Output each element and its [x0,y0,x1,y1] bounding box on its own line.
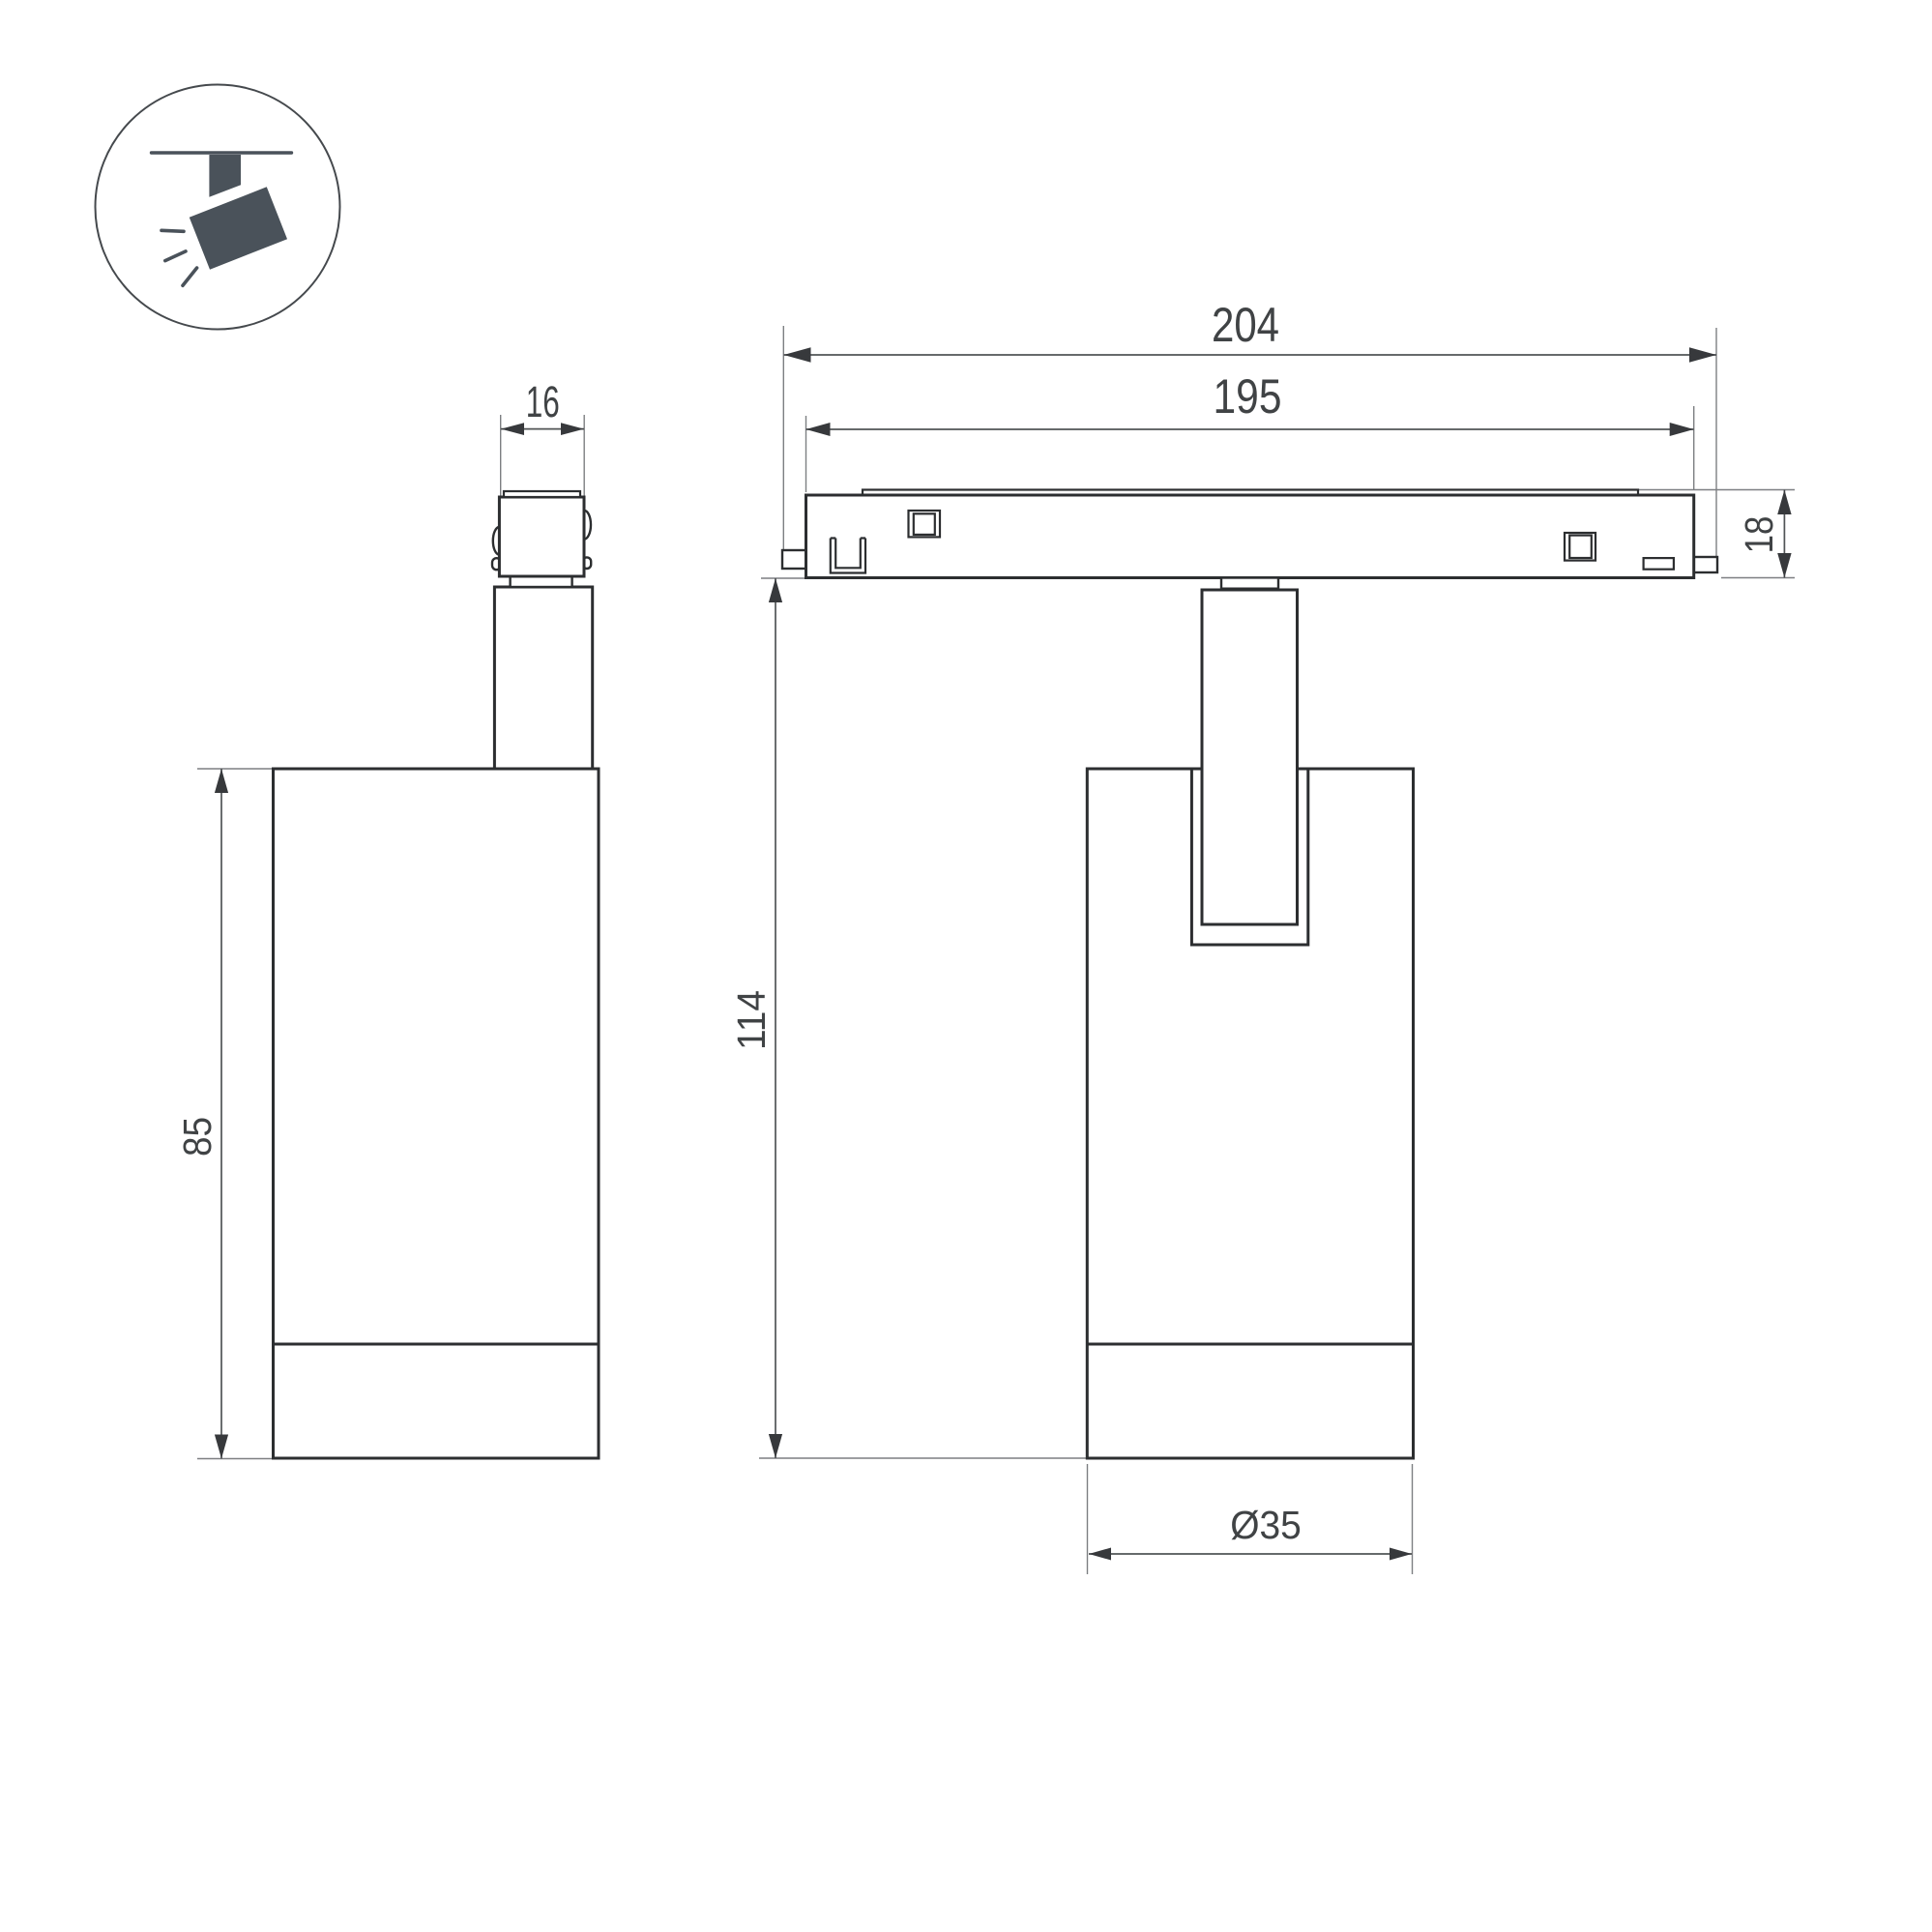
svg-text:204: 204 [1212,298,1279,352]
svg-text:195: 195 [1214,369,1282,424]
svg-text:85: 85 [176,1117,220,1156]
svg-text:114: 114 [730,990,774,1050]
svg-text:Ø35: Ø35 [1230,1504,1302,1547]
svg-text:18: 18 [1738,516,1781,554]
svg-text:16: 16 [526,379,560,427]
